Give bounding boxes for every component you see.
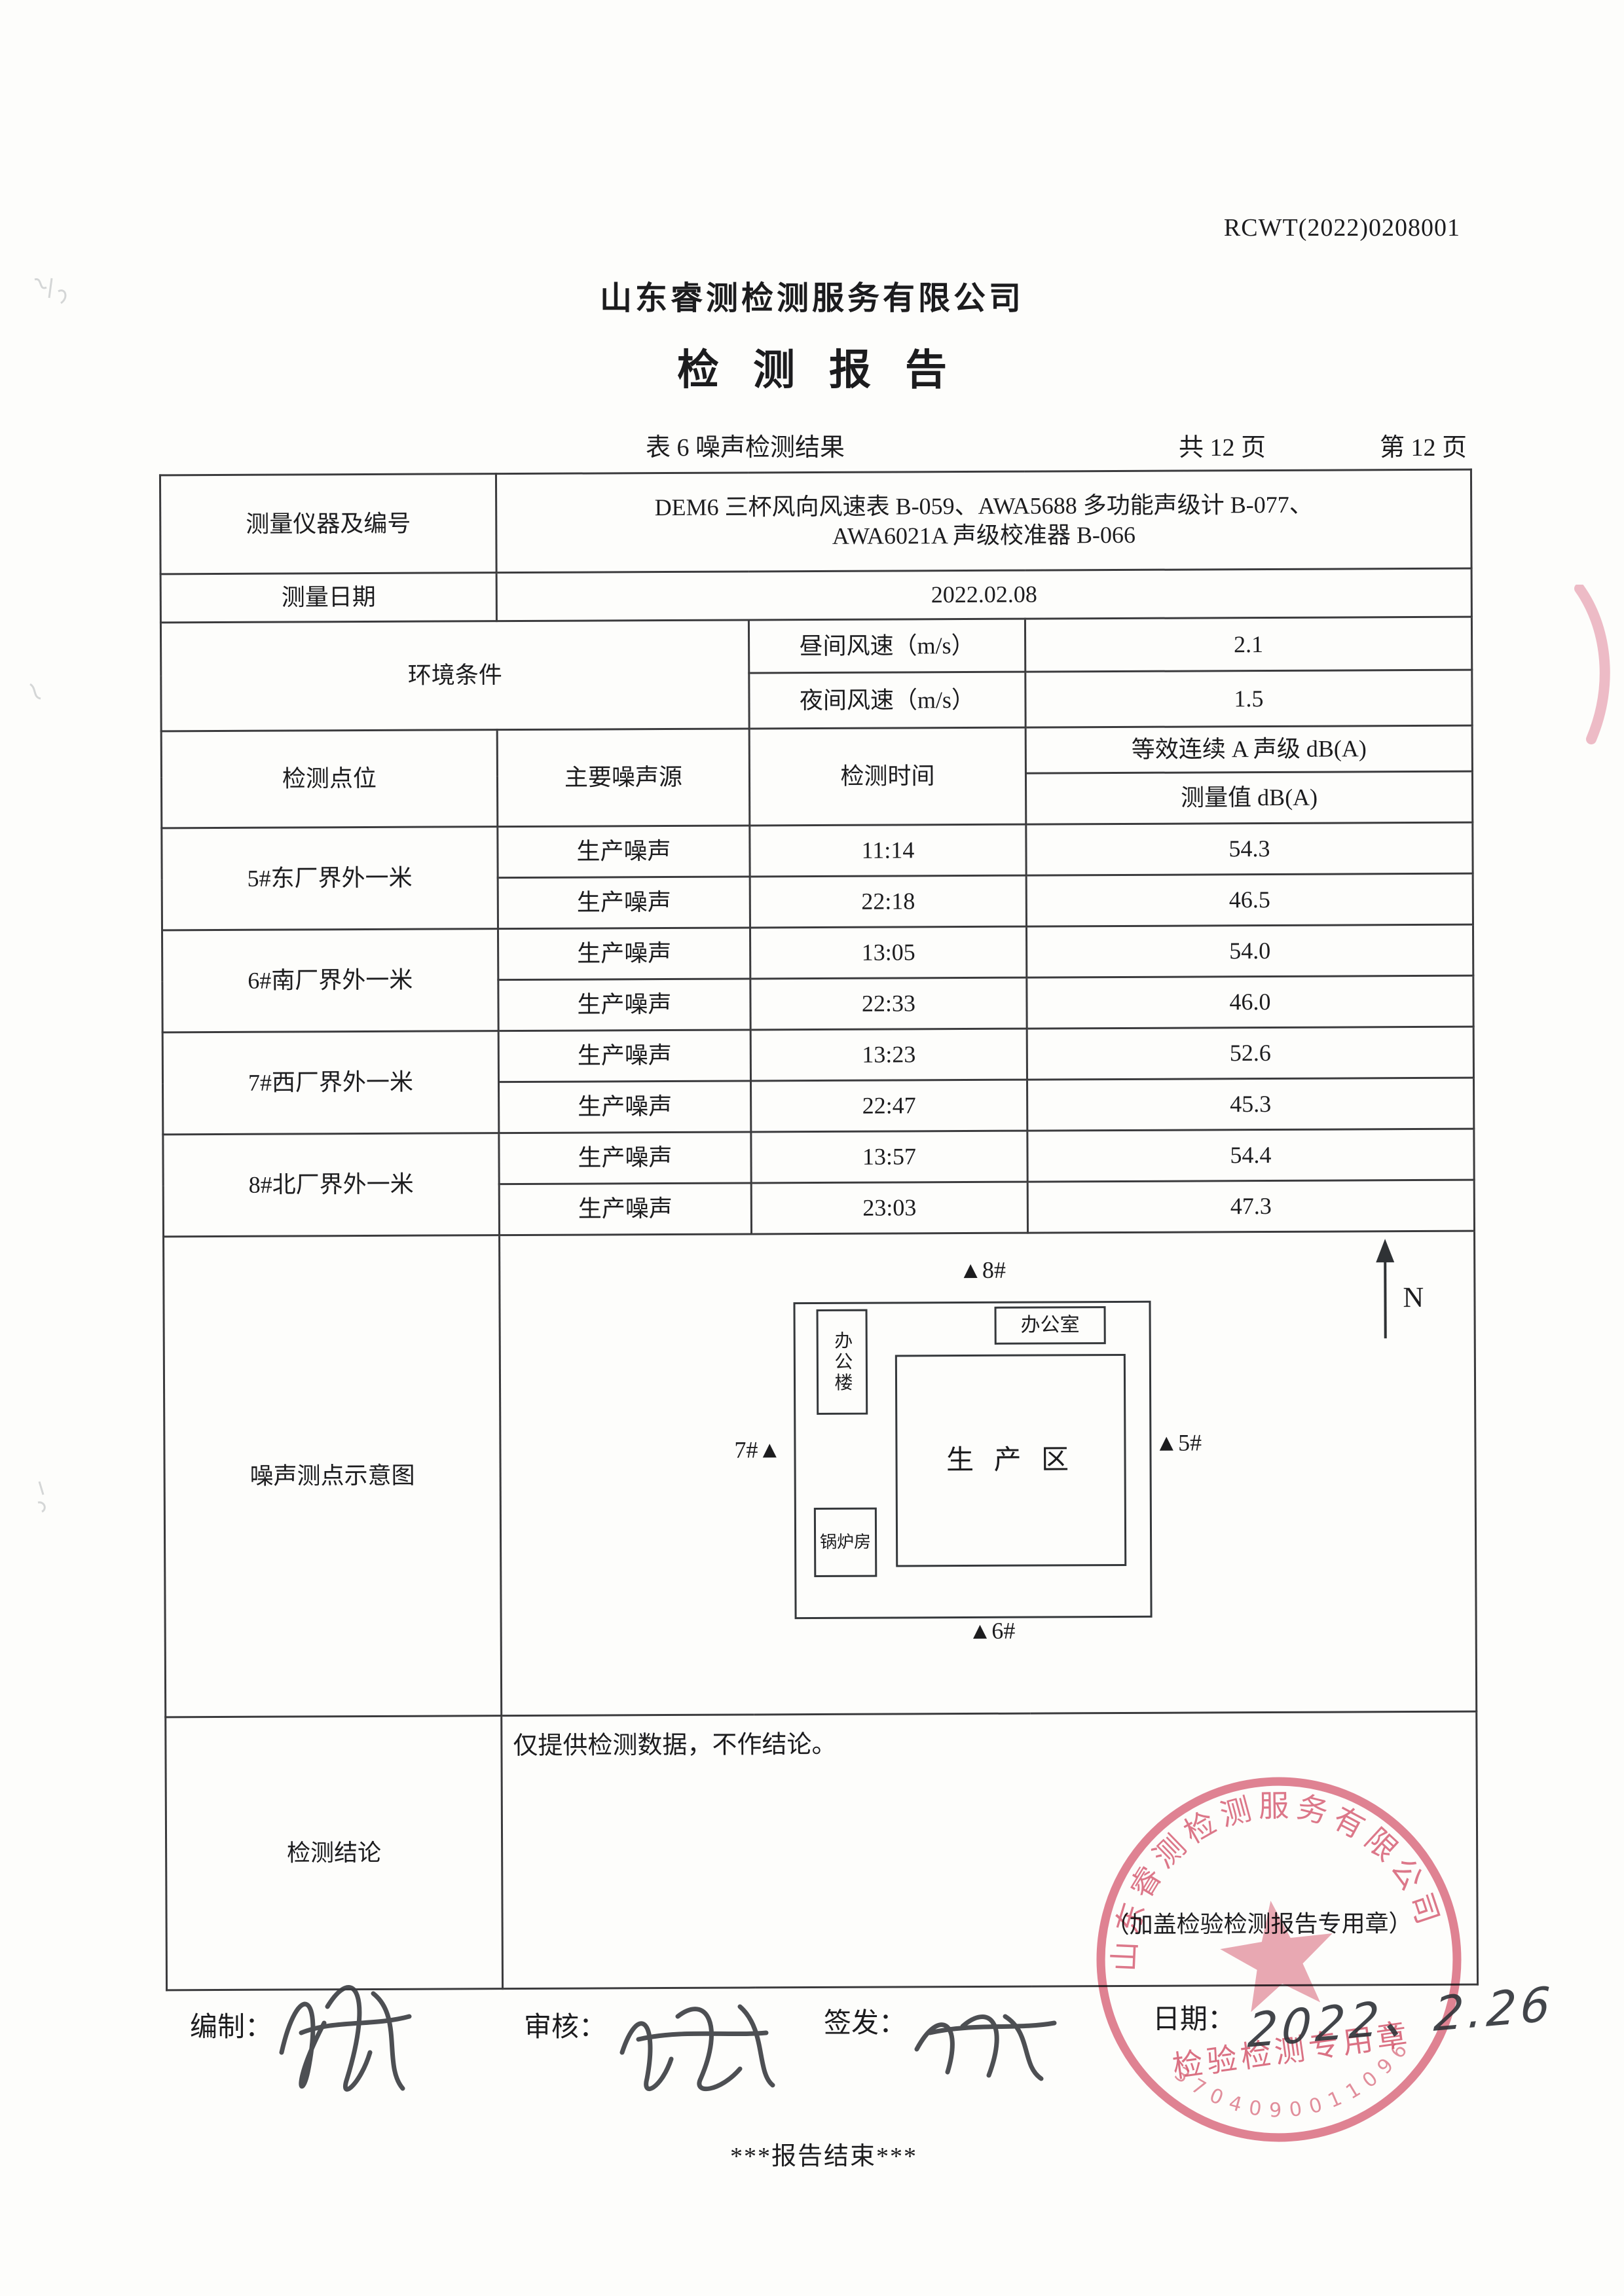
page-total: 共 12 页 [1179,427,1266,463]
office-building-box: 办公楼 [817,1309,868,1415]
diagram-row: 噪声测点示意图 办公楼 办公室 生 产 区 锅炉房 ▲8# ▲5# 7#▲ ▲6… [164,1231,1477,1717]
monitor-point-5: ▲5# [1154,1428,1202,1457]
time-cell: 22:18 [750,875,1026,928]
conclusion-text: 仅提供检测数据，不作结论。 [513,1730,836,1762]
source-cell: 生产噪声 [498,928,750,980]
scan-artifact [33,1476,59,1516]
time-cell: 13:57 [751,1131,1027,1183]
table-row: 测量日期 2022.02.08 [160,568,1471,623]
partial-seal-arc [1570,585,1624,744]
time-cell: 22:33 [750,977,1027,1030]
table-row: 8#北厂界外一米 生产噪声 13:57 54.4 [163,1129,1474,1186]
source-cell: 生产噪声 [498,1030,750,1082]
noise-result-table: 测量仪器及编号 DEM6 三杯风向风速表 B-059、AWA5688 多功能声级… [159,469,1479,1992]
point-cell: 7#西厂界外一米 [162,1031,499,1135]
instrument-line-1: DEM6 三杯风向风速表 B-059、AWA5688 多功能声级计 B-077、 [497,490,1470,523]
page-current: 第 12 页 [1380,427,1467,463]
header-time: 检测时间 [749,727,1026,826]
date-value-cell: 2022.02.08 [496,568,1471,621]
value-cell: 46.5 [1026,873,1473,926]
header-level-sub: 测量值 dB(A) [1025,771,1472,824]
source-cell: 生产噪声 [499,1081,751,1133]
value-cell: 52.6 [1027,1027,1473,1080]
scan-artifact [29,272,75,311]
reviewed-signature [609,1980,779,2105]
reviewed-by-label: 审核： [524,2005,606,2045]
table-row: 6#南厂界外一米 生产噪声 13:05 54.0 [162,924,1473,981]
monitor-point-7: 7#▲ [734,1435,781,1465]
instrument-line-2: AWA6021A 声级校准器 B-066 [497,519,1470,553]
office-box: 办公室 [995,1306,1106,1345]
date-label-cell: 测量日期 [160,573,496,623]
table-header-row: 检测点位 主要噪声源 检测时间 等效连续 A 声级 dB(A) [161,725,1472,777]
scan-artifact [25,678,51,704]
value-cell: 54.3 [1026,822,1473,875]
source-cell: 生产噪声 [498,979,750,1031]
table-row: 5#东厂界外一米 生产噪声 11:14 54.3 [162,822,1473,879]
header-level-group: 等效连续 A 声级 dB(A) [1025,725,1472,773]
time-cell: 22:47 [751,1080,1027,1132]
monitor-point-8: ▲8# [959,1256,1006,1285]
night-wind-label-cell: 夜间风速（m/s） [749,672,1025,729]
day-wind-label-cell: 昼间风速（m/s） [748,619,1025,673]
boiler-room-box: 锅炉房 [814,1508,877,1577]
header-source: 主要噪声源 [497,729,750,827]
site-diagram: 办公楼 办公室 生 产 区 锅炉房 ▲8# ▲5# 7#▲ ▲6# N [500,1231,1477,1715]
source-cell: 生产噪声 [499,1183,751,1235]
office-building-label: 办公楼 [830,1330,853,1393]
value-cell: 54.0 [1026,924,1473,977]
value-cell: 54.4 [1027,1129,1474,1182]
instrument-label-cell: 测量仪器及编号 [160,474,496,574]
report-end-text: ***报告结束*** [730,2136,917,2172]
conclusion-label-cell: 检测结论 [166,1716,503,1990]
source-cell: 生产噪声 [498,877,750,929]
table-caption: 表 6 噪声检测结果 [646,427,845,463]
source-cell: 生产噪声 [499,1132,751,1184]
prepared-by-label: 编制： [190,2005,272,2045]
header-point: 检测点位 [161,730,498,828]
report-page: RCWT(2022)0208001 山东睿测检测服务有限公司 检 测 报 告 表… [0,0,1624,2296]
env-label-cell: 环境条件 [160,620,749,731]
table-row: 环境条件 昼间风速（m/s） 2.1 [160,617,1471,676]
diagram-label-cell: 噪声测点示意图 [164,1235,502,1717]
value-cell: 47.3 [1027,1180,1474,1233]
point-cell: 5#东厂界外一米 [162,827,498,930]
value-cell: 46.0 [1027,975,1473,1029]
date-label: 日期： [1153,1997,1235,2037]
time-cell: 11:14 [750,824,1026,877]
production-area-box: 生 产 区 [895,1354,1126,1567]
monitor-point-6: ▲6# [969,1616,1016,1646]
table-row: 测量仪器及编号 DEM6 三杯风向风速表 B-059、AWA5688 多功能声级… [160,469,1471,574]
instrument-value-cell: DEM6 三杯风向风速表 B-059、AWA5688 多功能声级计 B-077、… [496,469,1471,572]
point-cell: 6#南厂界外一米 [162,929,498,1032]
north-arrow-icon [1376,1239,1394,1262]
north-arrow-line [1384,1261,1387,1338]
report-number: RCWT(2022)0208001 [0,213,1460,242]
north-label: N [1403,1279,1424,1315]
source-cell: 生产噪声 [498,826,750,878]
time-cell: 13:05 [750,926,1026,979]
value-cell: 45.3 [1027,1078,1474,1131]
issued-signature [907,1987,1064,2085]
company-name: 山东睿测检测服务有限公司 [0,272,1624,319]
night-wind-value-cell: 1.5 [1025,670,1472,727]
day-wind-value-cell: 2.1 [1025,617,1471,672]
point-cell: 8#北厂界外一米 [163,1133,500,1237]
time-cell: 23:03 [751,1182,1027,1234]
page-title: 检 测 报 告 [0,337,1624,397]
table-row: 7#西厂界外一米 生产噪声 13:23 52.6 [162,1027,1473,1084]
prepared-signature [262,1954,426,2111]
issued-by-label: 签发： [824,2001,906,2041]
time-cell: 13:23 [750,1029,1027,1081]
company-seal: 山东睿测检测服务有限公司 检验检测专用章 3704090011096 [1068,1749,1490,2170]
page-info: 共 12 页 第 12 页 [1179,427,1467,463]
